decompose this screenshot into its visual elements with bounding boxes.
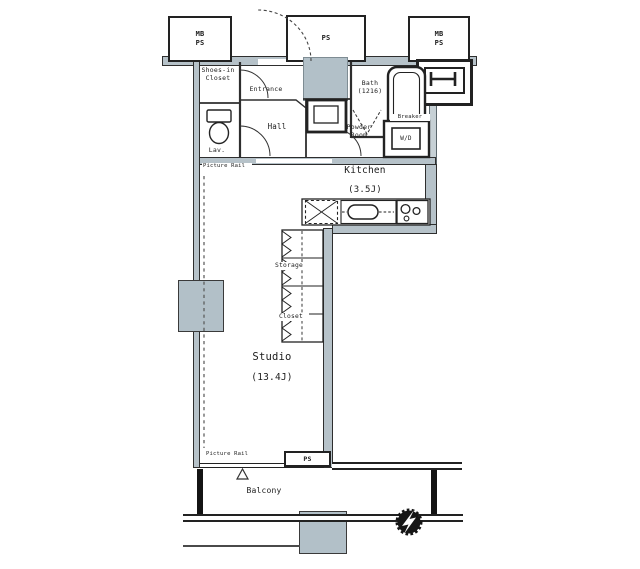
room-label-studio: Studio	[238, 351, 306, 365]
window-marker-triangle	[237, 469, 248, 479]
entrance-step-line	[240, 100, 306, 108]
room-label-kitchen: Kitchen	[333, 165, 397, 177]
washer-dryer-text: W/D	[400, 135, 411, 143]
note-picture-rail-bottom: Picture Rail	[205, 451, 255, 458]
room-label-lav: Lav.	[201, 146, 233, 154]
kitchen-counter	[302, 199, 430, 225]
label-closet: Closet	[273, 313, 309, 321]
room-label-balcony: Balcony	[236, 486, 292, 496]
shoes-closet-door-arc	[240, 70, 268, 98]
compass-icon	[398, 510, 421, 534]
entrance-door-arc	[258, 10, 311, 61]
room-label-studio-size: (13.4J)	[236, 372, 308, 384]
sink-icon	[348, 205, 378, 219]
floor-plan: MB PS PS MB PS PS	[0, 0, 640, 569]
plan-linework	[0, 0, 640, 569]
note-picture-rail-top: Picture Rail	[202, 163, 252, 170]
label-washer-dryer: W/D	[392, 128, 420, 149]
label-breaker: Breaker	[390, 114, 430, 121]
toilet-icon	[207, 110, 231, 144]
room-label-hall: Hall	[258, 122, 296, 132]
room-label-shoes-closet: Shoes-in Closet	[195, 66, 241, 83]
label-storage: Storage	[269, 262, 309, 270]
room-label-kitchen-size: (3.5J)	[333, 185, 397, 197]
storage-closet-units	[282, 230, 323, 342]
room-label-bath: Bath (1216)	[349, 79, 391, 96]
room-label-entrance: Entrance	[237, 85, 295, 93]
room-label-powder: Powder Room	[340, 123, 378, 140]
